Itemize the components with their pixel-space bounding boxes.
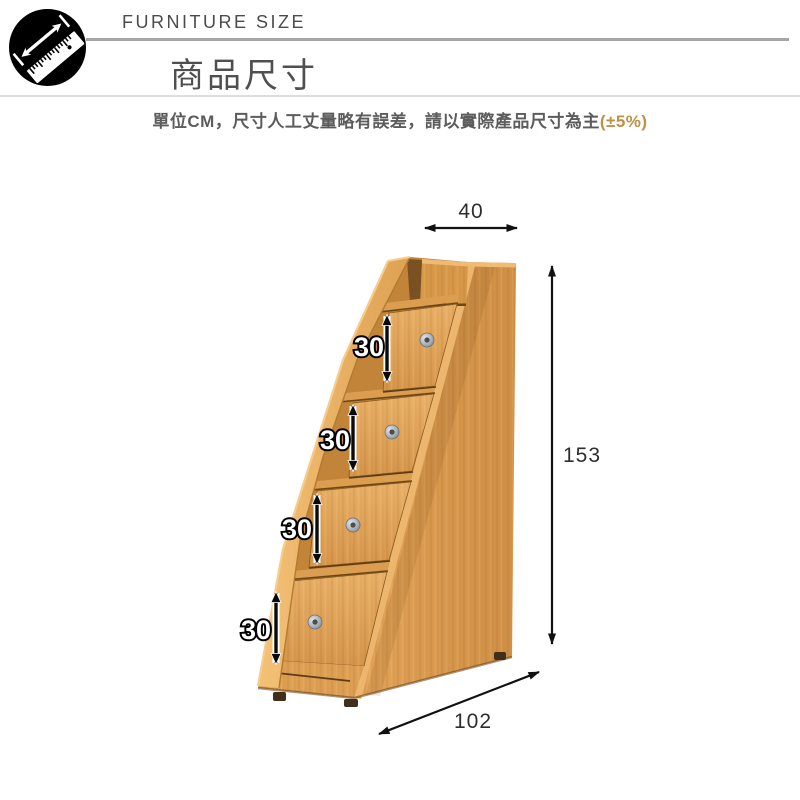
page-title: 商品尺寸 <box>170 48 318 97</box>
brand-label: FURNITURE SIZE <box>122 12 306 33</box>
header-divider-dark <box>86 38 789 41</box>
dim-height-label: 153 <box>563 444 601 467</box>
measurement-note: 單位CM，尺寸人工丈量略有誤差，請以實際產品尺寸為主(±5%) <box>0 107 800 132</box>
dim-step-4-label: 30 <box>241 615 271 645</box>
furniture-size-page: 40 153 102 30 30 30 30 <box>0 0 800 800</box>
dim-step-3-label: 30 <box>282 514 312 544</box>
measure-ruler-icon <box>9 9 86 86</box>
tolerance-badge: (±5%) <box>600 112 648 131</box>
dim-depth-label: 102 <box>454 710 492 733</box>
header-divider-light <box>0 95 800 97</box>
dimension-top-width: 40 <box>425 200 517 228</box>
dimension-height: 153 <box>552 266 601 644</box>
dim-step-1-label: 30 <box>354 332 384 362</box>
measurement-note-text: 單位CM，尺寸人工丈量略有誤差，請以實際產品尺寸為主 <box>152 112 599 131</box>
dim-step-2-label: 30 <box>320 425 350 455</box>
dim-top-width-label: 40 <box>458 200 483 223</box>
